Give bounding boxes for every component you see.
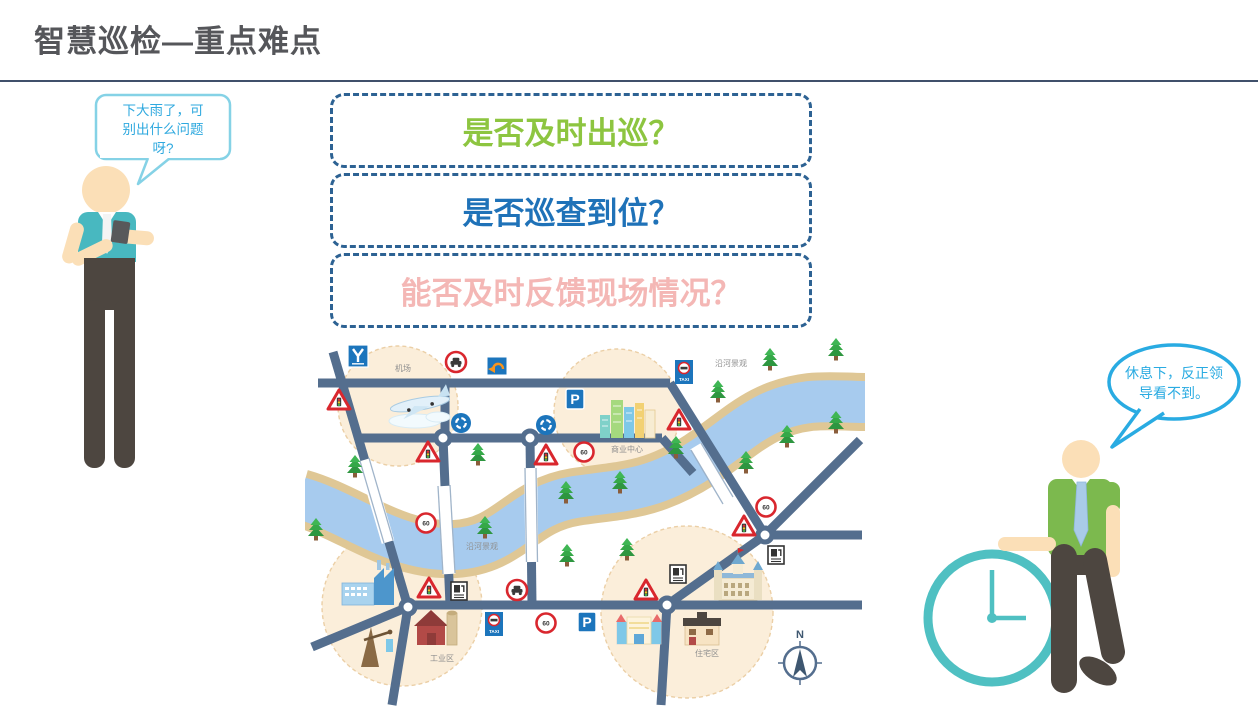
label-riverside-lower: 沿河景观 xyxy=(466,541,498,551)
gas-station-sign xyxy=(670,565,686,583)
tree xyxy=(710,380,726,403)
person-leg xyxy=(84,300,105,468)
roundabout-sign xyxy=(536,415,556,435)
speech-line: 休息下，反正领 xyxy=(1125,365,1223,381)
speech-line: 别出什么问题 xyxy=(123,122,204,137)
speech-line: 导看不到。 xyxy=(1139,385,1209,401)
label-industrial: 工业区 xyxy=(430,653,454,663)
bubble-tail xyxy=(1112,409,1164,447)
speed-limit-sign: 60 xyxy=(537,614,556,633)
parking-sign: P xyxy=(566,389,584,409)
hospital-building xyxy=(616,614,662,644)
resting-arm xyxy=(998,537,1056,551)
tree xyxy=(762,348,778,371)
no-vehicles-sign xyxy=(507,580,527,600)
label-commercial: 商业中心 xyxy=(611,444,643,454)
taxi-sign: TAXI xyxy=(675,360,693,384)
left-person-illustration: 下大雨了，可 别出什么问题 呀? xyxy=(40,85,320,485)
right-speech-bubble: 休息下，反正领 导看不到。 xyxy=(1109,345,1239,447)
question-box-timely-feedback: 能否及时反馈现场情况？ xyxy=(330,253,812,328)
left-person xyxy=(60,166,154,468)
svg-text:TAXI: TAXI xyxy=(489,629,499,634)
question-box-patrol-on-time: 是否及时出巡？ xyxy=(330,93,812,168)
bubble-tail xyxy=(138,158,170,184)
right-person-illustration: 休息下，反正领 导看不到。 xyxy=(915,330,1258,707)
traffic-light-warning-sign xyxy=(535,445,557,464)
no-vehicles-sign xyxy=(446,352,466,372)
person-head xyxy=(1062,440,1100,478)
svg-text:60: 60 xyxy=(542,621,550,628)
page-title: 智慧巡检—重点难点 xyxy=(34,16,322,61)
person-head xyxy=(82,166,130,214)
city-map-illustration: N 60 60 60 60 P P TAXI xyxy=(305,338,865,707)
phone xyxy=(111,220,131,244)
airport-sign xyxy=(348,345,368,367)
question-box-inspection-thorough: 是否巡查到位？ xyxy=(330,173,812,248)
compass: N xyxy=(778,629,822,685)
speed-limit-sign: 60 xyxy=(757,498,776,517)
label-riverside-upper: 沿河景观 xyxy=(715,358,747,368)
question-text: 是否及时出巡？ xyxy=(463,108,680,153)
roundabout-sign xyxy=(451,413,471,433)
speech-line: 呀? xyxy=(152,141,173,156)
question-text: 能否及时反馈现场情况？ xyxy=(401,268,742,313)
svg-text:TAXI: TAXI xyxy=(679,377,689,382)
svg-text:60: 60 xyxy=(580,450,588,457)
gas-station-sign xyxy=(451,582,467,600)
taxi-sign: TAXI xyxy=(485,612,503,636)
title-divider xyxy=(0,80,1258,82)
parking-sign: P xyxy=(578,612,596,632)
person-leg xyxy=(114,300,135,468)
svg-text:60: 60 xyxy=(762,505,770,512)
svg-text:60: 60 xyxy=(422,521,430,528)
label-airport: 机场 xyxy=(395,363,411,373)
label-residential: 住宅区 xyxy=(695,648,719,658)
question-text: 是否巡查到位？ xyxy=(463,188,680,233)
speed-limit-sign: 60 xyxy=(417,514,436,533)
compass-label: N xyxy=(796,629,804,641)
tree xyxy=(470,443,486,466)
speech-line: 下大雨了，可 xyxy=(123,103,204,118)
tree xyxy=(559,544,575,567)
speed-limit-sign: 60 xyxy=(575,443,594,462)
svg-text:P: P xyxy=(582,614,591,630)
svg-text:P: P xyxy=(570,391,579,407)
detour-sign xyxy=(487,357,507,375)
wall-clock xyxy=(928,554,1056,682)
gas-station-sign xyxy=(768,546,784,564)
tree xyxy=(828,338,844,361)
